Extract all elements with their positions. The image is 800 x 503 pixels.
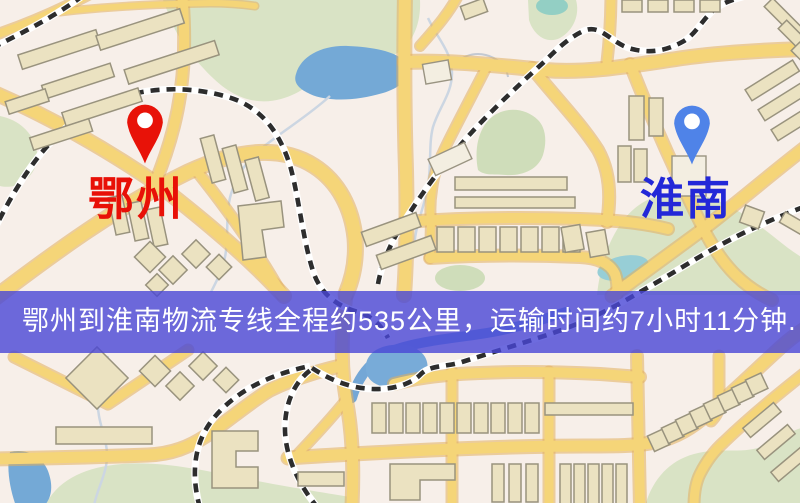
destination-marker-pin[interactable] [671,101,713,171]
origin-pin-icon [124,100,166,166]
destination-city-label: 淮南 [640,178,732,222]
route-info-text: 鄂州到淮南物流专线全程约535公里，运输时间约7小时11分钟. [22,299,797,338]
origin-city-label: 鄂州 [88,176,184,222]
map-viewport[interactable]: 鄂州 淮南 鄂州到淮南物流专线全程约535公里，运输时间约7小时11分钟. [0,0,800,503]
origin-marker-pin[interactable] [124,100,166,170]
map-canvas[interactable] [0,0,800,503]
route-info-banner: 鄂州到淮南物流专线全程约535公里，运输时间约7小时11分钟. [0,291,800,353]
destination-pin-icon [671,101,713,167]
